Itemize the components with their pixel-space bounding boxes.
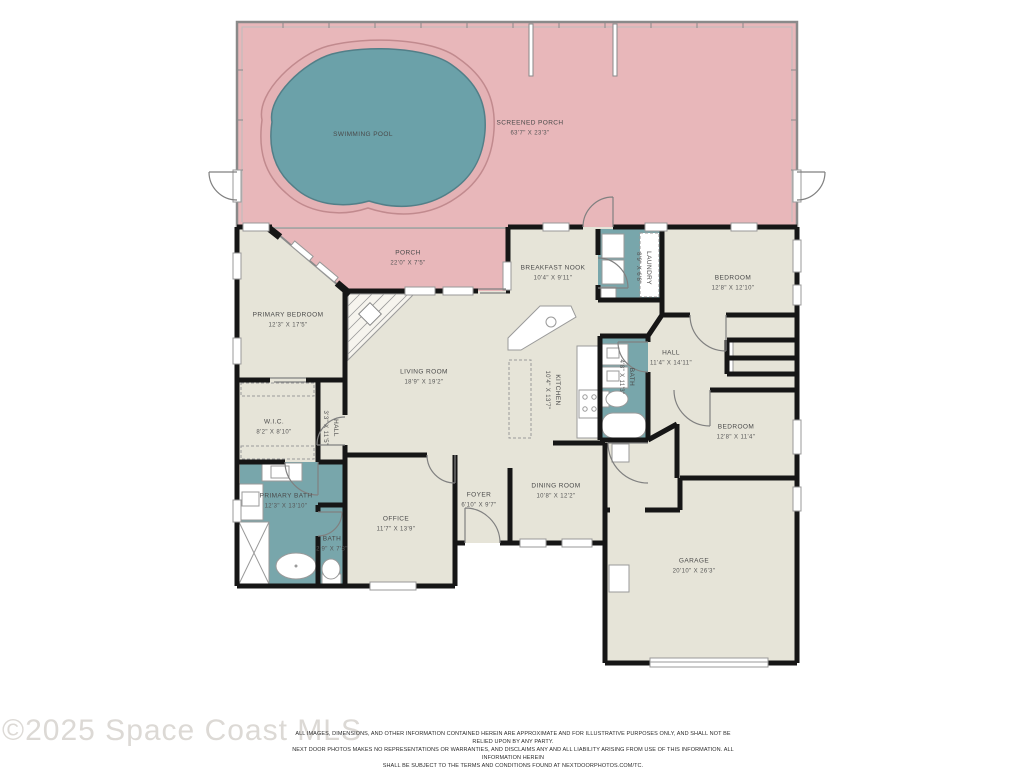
room-name: OFFICE xyxy=(383,516,409,523)
room-name: GARAGE xyxy=(679,558,709,565)
floor-plan-canvas: SCREENED PORCH 63'7" X 23'3" SWIMMING PO… xyxy=(0,0,1024,768)
room-label-hall-small: HALL 3'3" X 11'5" xyxy=(322,411,338,446)
room-name: KITCHEN xyxy=(553,374,560,405)
room-dims: 10'4" X 9'11" xyxy=(534,275,573,281)
room-dims: 12'8" X 11'4" xyxy=(717,434,756,440)
room-dims: 12'8" X 12'10" xyxy=(712,285,755,291)
room-label-bedroom-1: BEDROOM 12'8" X 12'10" xyxy=(712,275,755,291)
room-dims: 2'9" X 7'8" xyxy=(316,546,348,552)
room-name: HALL xyxy=(331,419,338,437)
room-label-bath-small: BATH 2'9" X 7'8" xyxy=(316,536,348,552)
room-name: W.I.C. xyxy=(264,419,284,426)
room-name: BEDROOM xyxy=(718,424,754,431)
disclaimer-line: SHALL BE SUBJECT TO THE TERMS AND CONDIT… xyxy=(287,763,739,768)
room-label-bedroom-2: BEDROOM 12'8" X 11'4" xyxy=(717,424,756,440)
room-name: BREAKFAST NOOK xyxy=(521,265,586,272)
room-dims: 10'8" X 12'2" xyxy=(536,493,575,499)
disclaimer-line: NEXT DOOR PHOTOS MAKES NO REPRESENTATION… xyxy=(287,747,739,763)
room-dims: 3'3" X 11'5" xyxy=(322,411,328,446)
disclaimer: ALL IMAGES, DIMENSIONS, AND OTHER INFORM… xyxy=(287,731,739,768)
room-name: PORCH xyxy=(395,250,420,257)
room-dims: 12'3" X 17'5" xyxy=(268,322,307,328)
room-dims: 11'7" X 13'9" xyxy=(377,526,416,532)
room-label-foyer: FOYER 6'10" X 9'7" xyxy=(461,492,496,508)
room-label-dining-room: DINING ROOM 10'8" X 12'2" xyxy=(531,483,580,499)
room-label-garage: GARAGE 20'10" X 26'3" xyxy=(673,558,716,574)
room-dims: 11'4" X 14'11" xyxy=(650,360,692,366)
room-name: BATH xyxy=(323,536,341,543)
room-label-primary-bedroom: PRIMARY BEDROOM 12'3" X 17'5" xyxy=(253,312,324,328)
swimming-pool-shape xyxy=(261,40,494,214)
room-label-swimming-pool: SWIMMING POOL xyxy=(333,132,393,139)
room-dims: 6'10" X 9'7" xyxy=(461,502,496,508)
room-dims: 4'8" X 11'3" xyxy=(618,360,624,395)
room-label-laundry: LAUNDRY 8'9" X 6'8" xyxy=(635,251,651,285)
floor-plan-drawing xyxy=(0,0,1024,768)
room-dims: 8'9" X 6'8" xyxy=(635,252,641,284)
room-label-primary-bath: PRIMARY BATH 12'3" X 13'10" xyxy=(260,493,313,509)
room-label-wic: W.I.C. 8'2" X 8'10" xyxy=(256,419,291,435)
room-label-bath-hall: BATH 4'8" X 11'3" xyxy=(618,360,634,395)
room-name: PRIMARY BATH xyxy=(260,493,313,500)
room-name: LAUNDRY xyxy=(644,251,651,285)
room-name: FOYER xyxy=(467,492,491,499)
room-dims: 20'10" X 26'3" xyxy=(673,568,716,574)
room-label-breakfast-nook: BREAKFAST NOOK 10'4" X 9'11" xyxy=(521,265,586,281)
room-name: PRIMARY BEDROOM xyxy=(253,312,324,319)
room-dims: 10'4" X 13'7" xyxy=(544,370,550,409)
room-name: LIVING ROOM xyxy=(400,369,448,376)
room-name: SWIMMING POOL xyxy=(333,132,393,139)
room-label-porch: PORCH 22'0" X 7'5" xyxy=(390,250,425,266)
room-name: HALL xyxy=(662,350,680,357)
room-name: DINING ROOM xyxy=(531,483,580,490)
room-name: BATH xyxy=(627,368,634,386)
room-label-hall: HALL 11'4" X 14'11" xyxy=(650,350,692,366)
room-name: BEDROOM xyxy=(715,275,751,282)
room-label-living-room: LIVING ROOM 18'9" X 19'2" xyxy=(400,369,448,385)
room-dims: 22'0" X 7'5" xyxy=(390,260,425,266)
room-label-kitchen: KITCHEN 10'4" X 13'7" xyxy=(544,370,560,409)
room-label-office: OFFICE 11'7" X 13'9" xyxy=(377,516,416,532)
room-label-screened-porch: SCREENED PORCH 63'7" X 23'3" xyxy=(497,120,564,136)
room-dims: 18'9" X 19'2" xyxy=(404,379,443,385)
room-name: SCREENED PORCH xyxy=(497,120,564,127)
room-dims: 63'7" X 23'3" xyxy=(510,130,549,136)
disclaimer-line: ALL IMAGES, DIMENSIONS, AND OTHER INFORM… xyxy=(287,731,739,747)
room-dims: 8'2" X 8'10" xyxy=(256,429,291,435)
room-dims: 12'3" X 13'10" xyxy=(265,503,308,509)
